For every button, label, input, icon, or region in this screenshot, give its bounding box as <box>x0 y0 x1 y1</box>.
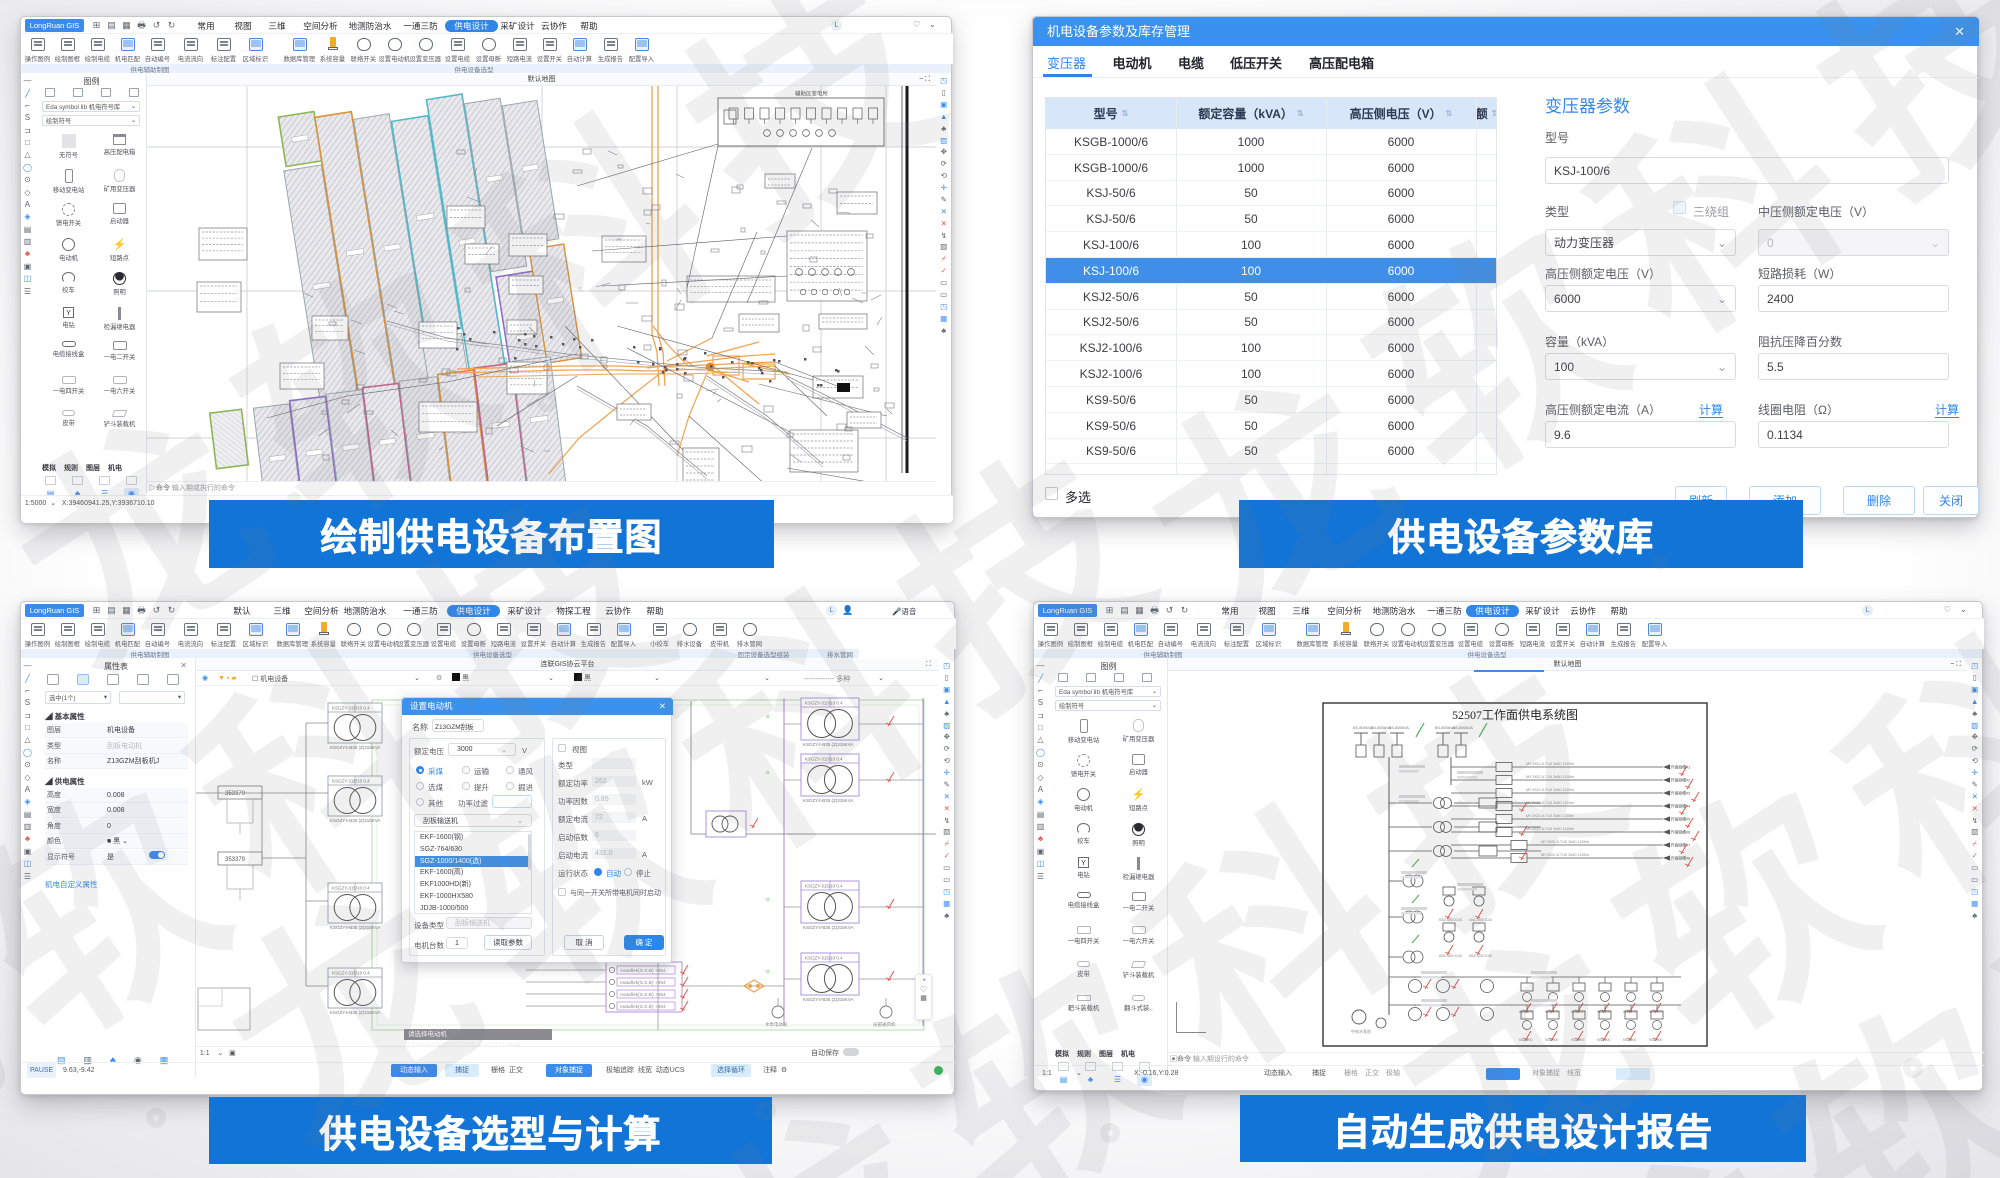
svg-text:MYJV22-8.7/10 3x50 1200m: MYJV22-8.7/10 3x50 1200m <box>1526 814 1574 818</box>
svg-text:KBZ-200: KBZ-200 <box>1519 1038 1532 1042</box>
svg-text:工作面顺槽#3: 工作面顺槽#3 <box>1667 791 1690 796</box>
svg-text:KBZ-200: KBZ-200 <box>1623 1038 1636 1042</box>
svg-text:MYJV22-8.7/10 3x50 1200m: MYJV22-8.7/10 3x50 1200m <box>1526 788 1574 792</box>
svg-text:353379: 353379 <box>225 791 246 797</box>
svg-text:工作面顺槽#5: 工作面顺槽#5 <box>1667 817 1690 822</box>
svg-text:KBZ-200: KBZ-200 <box>1545 1038 1558 1042</box>
svg-text:工作面顺槽#2: 工作面顺槽#2 <box>1667 778 1690 783</box>
svg-text:G: G <box>766 770 770 775</box>
svg-text:mataflek(S.S.B) +364: mataflek(S.S.B) +364 <box>620 968 666 974</box>
svg-text:353379: 353379 <box>225 857 246 863</box>
svg-text:KSGZY4-B35 (Z)315KVA: KSGZY4-B35 (Z)315KVA <box>803 997 853 1002</box>
svg-text:6S-800kVA: 6S-800kVA <box>1453 725 1473 730</box>
svg-text:局部通风机: 局部通风机 <box>873 1021 896 1028</box>
svg-text:KSGZY-315/10 0.4: KSGZY-315/10 0.4 <box>805 956 843 961</box>
svg-text:KSGZY-315/10 0.4: KSGZY-315/10 0.4 <box>332 779 370 784</box>
svg-text:KSGZY4-B35 (Z)315KVA: KSGZY4-B35 (Z)315KVA <box>803 798 853 803</box>
svg-text:KSGZY4-B35 (Z)315KVA: KSGZY4-B35 (Z)315KVA <box>330 925 380 930</box>
svg-text:水泵电动机: 水泵电动机 <box>765 1021 788 1028</box>
svg-text:工作面顺槽#8: 工作面顺槽#8 <box>1667 856 1690 861</box>
svg-text:G: G <box>766 897 770 902</box>
svg-text:KSGZY4-B35 (Z)315KVA: KSGZY4-B35 (Z)315KVA <box>330 1010 380 1015</box>
svg-text:KSGZY-315/10 0.4: KSGZY-315/10 0.4 <box>332 706 370 711</box>
svg-text:MYJV22-8.7/10 3x50 1200m: MYJV22-8.7/10 3x50 1200m <box>1526 762 1574 766</box>
svg-text:KBZ-200: KBZ-200 <box>1571 1038 1584 1042</box>
svg-text:中央水泵房: 中央水泵房 <box>1351 1028 1371 1034</box>
svg-text:mataflek(S.S.B) +364: mataflek(S.S.B) +364 <box>620 980 666 986</box>
svg-text:KBZ-200: KBZ-200 <box>1649 1038 1662 1042</box>
svg-text:KSGZY4-B35 (Z)315KVA: KSGZY4-B35 (Z)315KVA <box>803 925 853 930</box>
svg-text:52507工作面供电系统图: 52507工作面供电系统图 <box>1452 708 1578 722</box>
svg-text:KBZ-400/1140: KBZ-400/1140 <box>1439 954 1462 958</box>
svg-text:MYJV22-8.7/10 3x50 1200m: MYJV22-8.7/10 3x50 1200m <box>1541 853 1589 857</box>
svg-text:MYJV22-8.7/10 3x50 1200m: MYJV22-8.7/10 3x50 1200m <box>1526 827 1574 831</box>
svg-text:MYJV22-8.7/10 3x50 1200m: MYJV22-8.7/10 3x50 1200m <box>1541 840 1589 844</box>
svg-text:KBZ-400/1140: KBZ-400/1140 <box>1439 918 1462 922</box>
svg-text:KSGZY-315/10 0.4: KSGZY-315/10 0.4 <box>805 884 843 889</box>
svg-text:KBZ-400/1140: KBZ-400/1140 <box>1469 918 1492 922</box>
svg-text:KSGZY-315/10 0.4: KSGZY-315/10 0.4 <box>805 757 843 762</box>
svg-text:G: G <box>766 714 770 719</box>
svg-text:KSGZY4-B35 (Z)315KVA: KSGZY4-B35 (Z)315KVA <box>330 745 380 750</box>
svg-text:KSGZY4-B35 (Z)315KVA: KSGZY4-B35 (Z)315KVA <box>330 818 380 823</box>
svg-text:KSGZY-315/10 0.4: KSGZY-315/10 0.4 <box>332 971 370 976</box>
svg-text:MYJV22-8.7/10 3x50 1200m: MYJV22-8.7/10 3x50 1200m <box>1526 775 1574 779</box>
svg-text:KSGZY-315/10 0.4: KSGZY-315/10 0.4 <box>805 701 843 706</box>
svg-text:工作面顺槽#6: 工作面顺槽#6 <box>1667 830 1690 835</box>
svg-text:KSGZY-315/10 0.4: KSGZY-315/10 0.4 <box>332 886 370 891</box>
svg-text:6S-800kVA: 6S-800kVA <box>1389 725 1409 730</box>
svg-text:G: G <box>766 969 770 974</box>
svg-text:KBZ-400/1140: KBZ-400/1140 <box>1469 954 1492 958</box>
svg-text:KSGZY4-B35 (Z)315KVA: KSGZY4-B35 (Z)315KVA <box>803 742 853 747</box>
svg-text:mataflek(S.S.B) +364: mataflek(S.S.B) +364 <box>620 992 666 998</box>
svg-text:辅助区变电所: 辅助区变电所 <box>795 90 829 98</box>
svg-text:mataflek(S.S.B) +364: mataflek(S.S.B) +364 <box>620 1004 666 1010</box>
svg-text:KBZ-200: KBZ-200 <box>1597 1038 1610 1042</box>
